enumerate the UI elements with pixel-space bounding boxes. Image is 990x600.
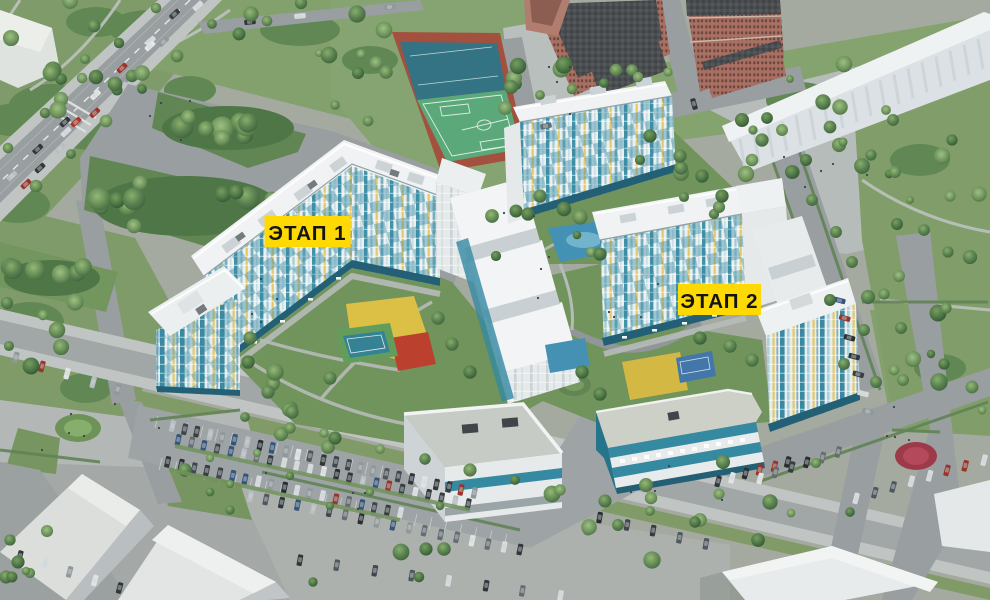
svg-text:ЭТАП 2: ЭТАП 2 (680, 290, 758, 313)
svg-text:ЭТАП 1: ЭТАП 1 (268, 222, 346, 245)
